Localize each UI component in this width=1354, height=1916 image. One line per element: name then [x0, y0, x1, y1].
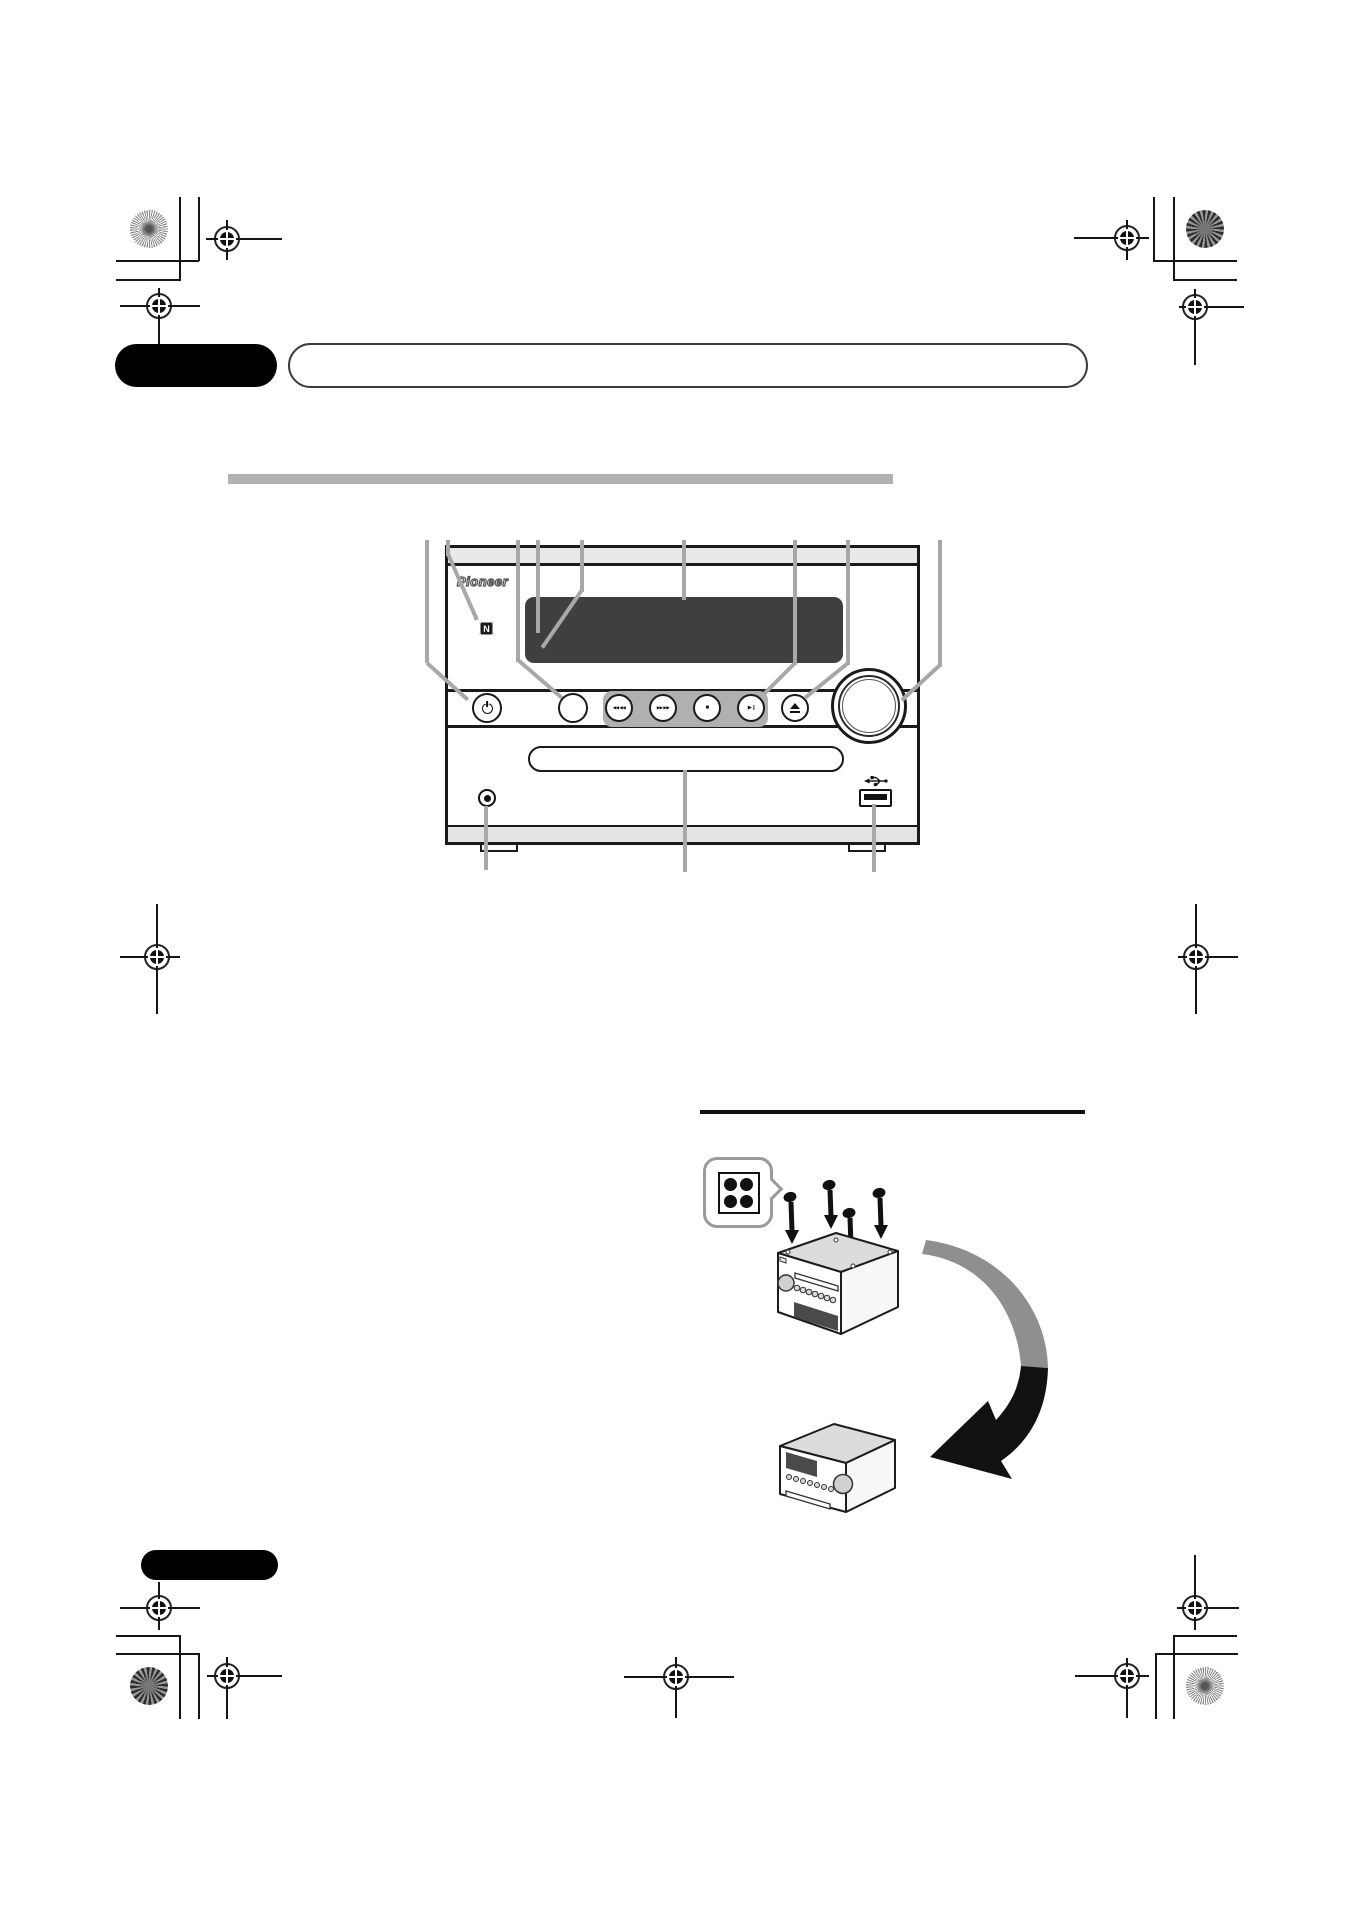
registration-mark: [146, 1595, 172, 1621]
callout-line-usb: [872, 804, 876, 872]
color-target-checker-bottom-left: [130, 1667, 168, 1705]
crop-mark: [198, 1653, 200, 1719]
header-title-banner: [288, 343, 1088, 388]
color-target-checker-top-right: [1186, 210, 1224, 248]
registration-mark: [663, 1664, 689, 1690]
callout-line-headphones: [484, 806, 488, 870]
callout-line-source: [516, 540, 520, 662]
screw-pattern-square: [718, 1172, 760, 1214]
play-pause-icon: ▶ ||: [748, 705, 755, 711]
registration-mark: [1182, 294, 1208, 320]
flip-arrow-head: [930, 1366, 1048, 1479]
crop-mark: [116, 279, 180, 281]
screw-dot: [740, 1178, 753, 1191]
stop-icon: ■: [705, 705, 708, 711]
registration-mark: [1114, 225, 1140, 251]
screw-dot: [724, 1178, 737, 1191]
disc-slot: [528, 746, 844, 772]
registration-mark: [1182, 1595, 1208, 1621]
headphone-jack: [478, 789, 496, 807]
previous-button: ◀◀ ◀◀: [605, 694, 633, 722]
callout-line-disc-slot: [683, 770, 687, 872]
crop-mark: [179, 197, 181, 281]
flip-arrow-tail: [922, 1240, 1048, 1368]
registration-mark: [144, 944, 170, 970]
crop-mark: [1155, 1653, 1238, 1655]
section-divider-bar: [228, 474, 893, 484]
crop-mark: [1173, 197, 1175, 281]
header-black-tab: [115, 344, 277, 387]
crop-mark: [198, 197, 200, 261]
next-icon: ▶▶ ▶▶: [657, 705, 670, 711]
registration-mark: [146, 293, 172, 319]
registration-mark: [214, 226, 240, 252]
usb-icon: [861, 774, 889, 788]
next-button: ▶▶ ▶▶: [649, 694, 677, 722]
power-icon: [482, 703, 493, 714]
crop-mark: [1155, 1653, 1157, 1719]
callout-line-play-pause: [793, 540, 797, 665]
callout-line-power: [425, 540, 429, 663]
callout-line-display-indicator: [580, 540, 584, 592]
previous-icon: ◀◀ ◀◀: [613, 705, 626, 711]
crop-mark: [179, 1635, 181, 1719]
crop-mark: [116, 260, 199, 262]
registration-mark: [1114, 1663, 1140, 1689]
stop-button: ■: [693, 694, 721, 722]
screw-arrow: [782, 1191, 799, 1244]
nfc-n-mark-icon: N: [479, 621, 494, 636]
registration-mark: [1183, 944, 1209, 970]
callout-line-display-left: [536, 540, 540, 633]
crop-mark: [116, 1635, 180, 1637]
power-button: [472, 693, 502, 723]
callout-line-eject: [846, 540, 850, 665]
screw-arrow: [871, 1187, 888, 1239]
registration-mark: [214, 1663, 240, 1689]
crop-mark: [1173, 1635, 1175, 1719]
crop-mark: [1173, 279, 1237, 281]
callout-line-display: [682, 540, 686, 600]
color-target-sunburst-bottom-right: [1186, 1667, 1224, 1705]
screw-dot: [724, 1195, 737, 1208]
crop-mark: [1153, 197, 1155, 261]
subsection-rule: [700, 1110, 1085, 1114]
manual-page: Pioneer N ◀◀ ◀◀ ▶▶ ▶▶ ■ ▶ ||: [0, 0, 1354, 1916]
screw-arrow: [821, 1179, 838, 1229]
crop-mark: [116, 1653, 199, 1655]
installation-diagram: [755, 1175, 1085, 1520]
crop-mark: [1153, 260, 1237, 262]
eject-icon: [790, 703, 800, 713]
screw-dot: [740, 1195, 753, 1208]
source-button: [558, 693, 588, 723]
color-target-sunburst-top-left: [130, 210, 168, 248]
callout-line-volume: [938, 540, 942, 667]
usb-port-slot: [864, 794, 887, 800]
play-pause-button: ▶ ||: [737, 694, 765, 722]
volume-knob: [831, 668, 907, 744]
crop-mark: [1173, 1635, 1237, 1637]
footer-black-tab: [141, 1550, 278, 1580]
